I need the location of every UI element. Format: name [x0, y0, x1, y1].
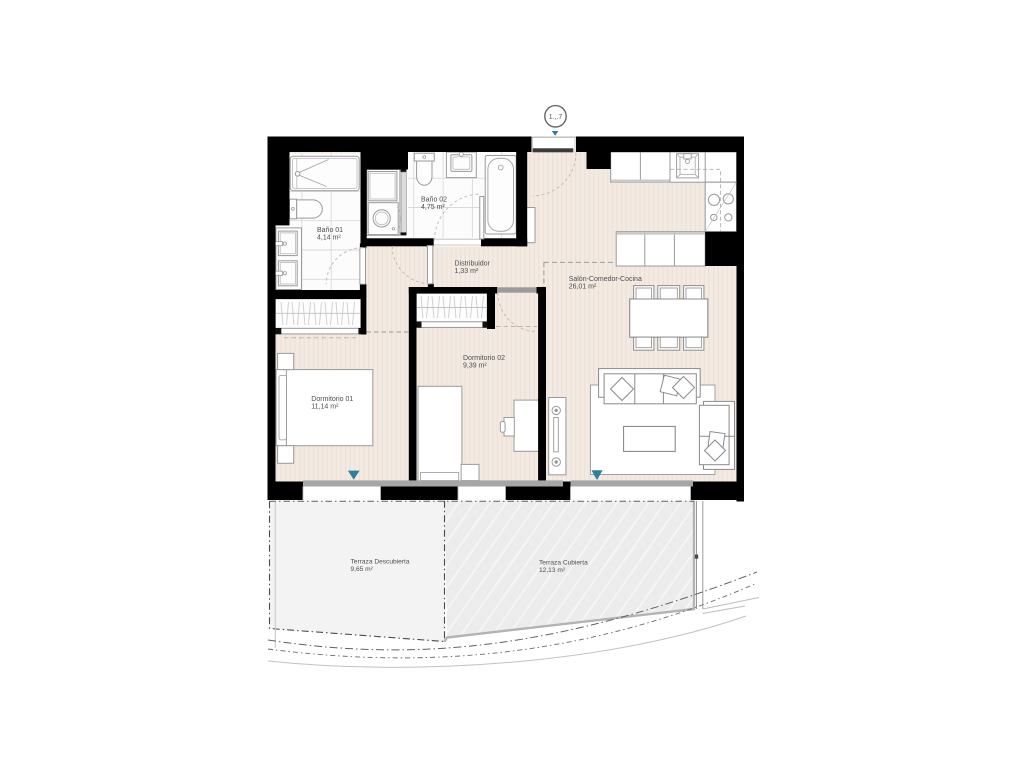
svg-text:12,13 m²: 12,13 m² [539, 567, 566, 574]
svg-text:9,65 m²: 9,65 m² [351, 566, 374, 573]
svg-text:Dormitorio 01: Dormitorio 01 [311, 396, 353, 403]
svg-text:Distribuidor: Distribuidor [455, 261, 491, 268]
svg-text:4,75 m²: 4,75 m² [421, 204, 445, 211]
svg-text:Salón-Comedor-Cocina: Salón-Comedor-Cocina [569, 276, 642, 283]
svg-text:9,39 m²: 9,39 m² [463, 363, 487, 370]
svg-text:26,01 m²: 26,01 m² [569, 284, 597, 291]
svg-text:Baño 01: Baño 01 [317, 227, 343, 234]
svg-text:1.,.7: 1.,.7 [549, 114, 563, 121]
svg-text:1,33 m²: 1,33 m² [455, 268, 479, 275]
svg-text:11,14 m²: 11,14 m² [311, 404, 339, 411]
svg-text:Baño 02: Baño 02 [421, 197, 447, 204]
svg-text:Dormitorio 02: Dormitorio 02 [463, 355, 505, 362]
svg-text:4,14 m²: 4,14 m² [317, 234, 341, 241]
svg-text:Terraza Cubierta: Terraza Cubierta [539, 560, 588, 567]
svg-text:Terraza Descubierta: Terraza Descubierta [351, 558, 410, 565]
